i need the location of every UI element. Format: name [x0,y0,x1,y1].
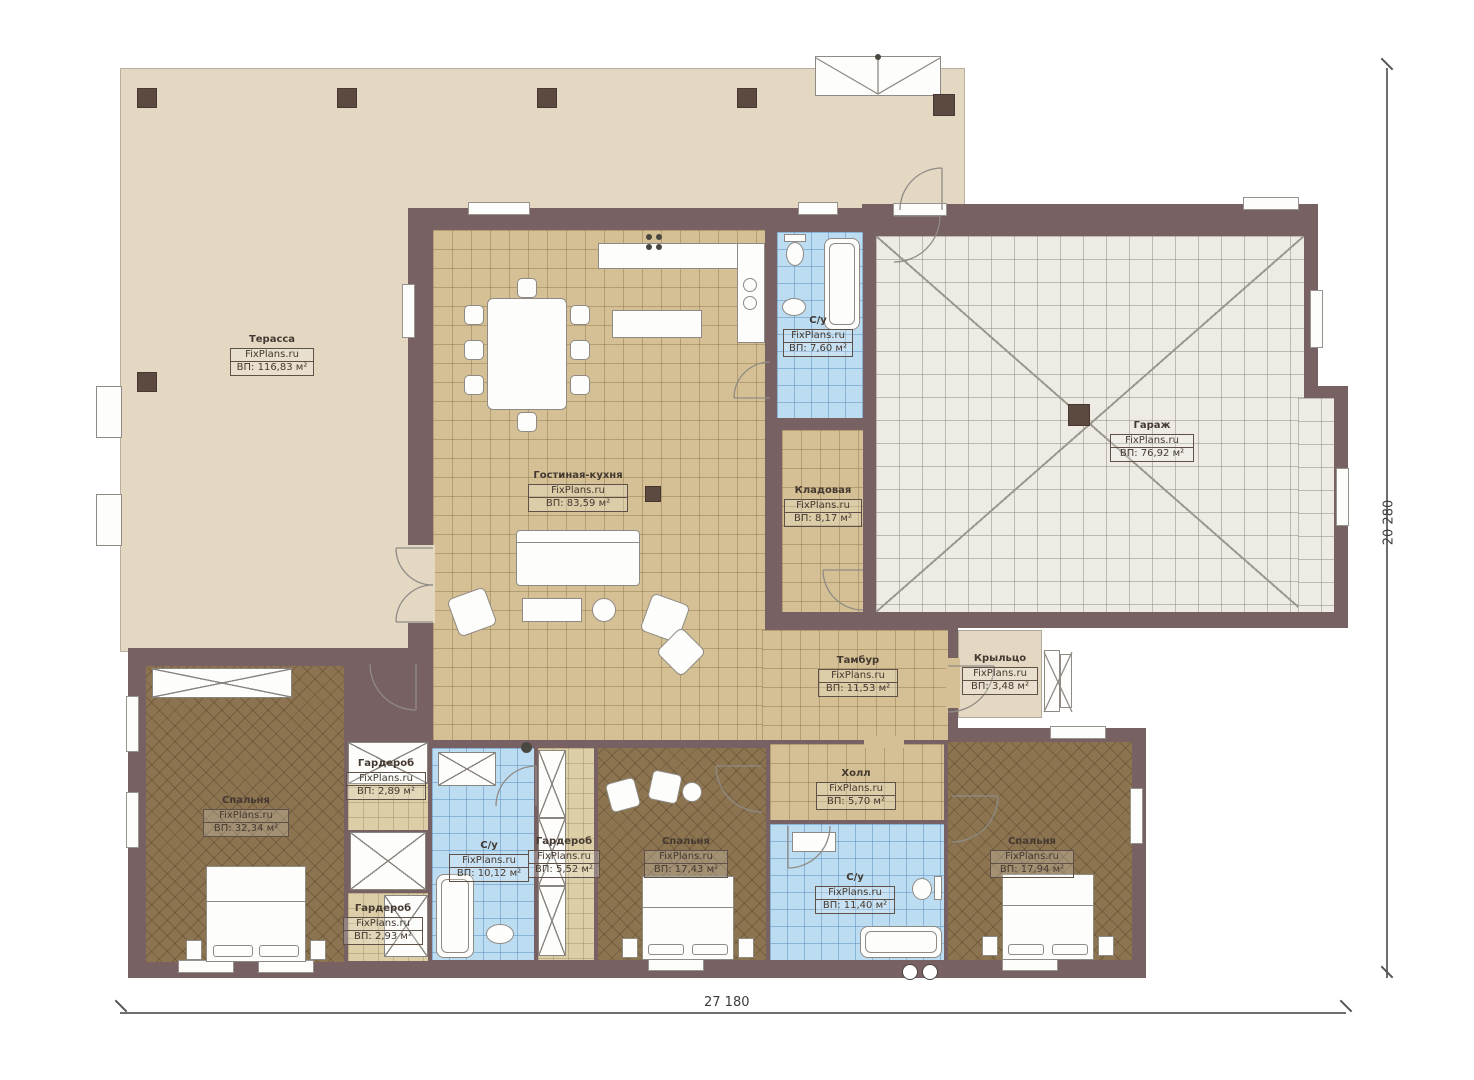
stove-burner [656,244,662,250]
canopy [815,56,941,96]
room-name: С/у [449,840,529,853]
dimension-width: 27 180 [700,995,754,1010]
room-area: ВП: 32,34 м² [204,823,288,836]
room-label-garage: Гараж FixPlans.ru ВП: 76,92 м² [1110,420,1194,462]
pillow [692,944,728,955]
room-label-wardrobe-mid: Гардероб FixPlans.ru ВП: 5,52 м² [528,836,600,878]
round-table [682,782,702,802]
room-area: ВП: 11,40 м² [816,900,894,913]
washbasin [782,298,806,316]
watermark: FixPlans.ru [231,349,313,363]
room-area: ВП: 8,17 м² [785,513,861,526]
room-name: Спальня [644,836,728,849]
bathtub-inner [865,931,937,953]
room-area: ВП: 76,92 м² [1111,448,1193,461]
room-label-bath-left: С/у FixPlans.ru ВП: 10,12 м² [449,840,529,882]
window [126,696,139,752]
terrace-post [337,88,357,108]
stove-burner [646,244,652,250]
window [1050,726,1106,739]
room-area: ВП: 3,48 м² [963,681,1037,694]
stove-burner [656,234,662,240]
room-info-box: FixPlans.ru ВП: 17,94 м² [990,850,1074,878]
dimension-tick [1340,1000,1353,1013]
room-name: Тамбур [818,655,898,668]
bathtub-inner [829,243,855,325]
watermark: FixPlans.ru [817,783,895,797]
window [1336,468,1349,526]
room-label-hall: Холл FixPlans.ru ВП: 5,70 м² [816,768,896,810]
armchair [647,769,683,805]
room-area: ВП: 17,43 м² [645,864,727,877]
hall-opening [864,736,904,748]
chair [464,305,484,325]
toilet-tank [934,876,942,900]
room-label-tambour: Тамбур FixPlans.ru ВП: 11,53 м² [818,655,898,697]
watermark: FixPlans.ru [344,918,422,932]
window [798,202,838,215]
entrance-opening [946,658,960,708]
watermark: FixPlans.ru [1111,435,1193,449]
nightstand [186,940,202,960]
washbasin [486,924,514,944]
porch-step [1044,650,1060,712]
watermark: FixPlans.ru [529,485,627,499]
nightstand [622,938,638,958]
room-name: Гардероб [343,903,423,916]
dimension-line-horizontal [120,1012,1346,1014]
toilet [786,242,804,266]
nightstand [738,938,754,958]
room-area: ВП: 116,83 м² [231,362,313,375]
nightstand [982,936,998,956]
column [645,486,661,502]
watermark: FixPlans.ru [529,851,599,865]
garage-door-opening [893,203,947,216]
bed [206,866,306,962]
room-info-box: FixPlans.ru ВП: 2,89 м² [346,772,426,800]
floor-plan: Терасса FixPlans.ru ВП: 116,83 м² Гостин… [0,0,1474,1080]
room-area: ВП: 10,12 м² [450,868,528,881]
room-info-box: FixPlans.ru ВП: 11,53 м² [818,669,898,697]
room-name: Терасса [230,334,314,347]
room-area: ВП: 2,93 м² [344,931,422,944]
chair [570,375,590,395]
side-table [592,598,616,622]
closet-xbox [438,752,496,786]
chair [570,340,590,360]
kitchen-sink [743,278,757,292]
room-name: Кладовая [784,485,862,498]
column-dot [521,742,532,753]
room-info-box: FixPlans.ru ВП: 76,92 м² [1110,434,1194,462]
bed [1002,874,1094,960]
garage-column [1068,404,1090,426]
room-area: ВП: 5,52 м² [529,864,599,877]
drain-circle [922,964,938,980]
watermark: FixPlans.ru [645,851,727,865]
dimension-height: 20 280 [1381,496,1396,550]
room-name: Гараж [1110,420,1194,433]
room-name: Гостиная-кухня [528,470,628,483]
room-area: ВП: 11,53 м² [819,683,897,696]
room-info-box: FixPlans.ru ВП: 116,83 м² [230,348,314,376]
pillow [648,944,684,955]
pillow [1052,944,1088,955]
room-info-box: FixPlans.ru ВП: 3,48 м² [962,667,1038,695]
closet-xbox [152,668,292,698]
watermark: FixPlans.ru [963,668,1037,682]
room-name: С/у [783,315,853,328]
room-info-box: FixPlans.ru ВП: 7,60 м² [783,329,853,357]
room-info-box: FixPlans.ru ВП: 17,43 м² [644,850,728,878]
terrace-post [737,88,757,108]
room-info-box: FixPlans.ru ВП: 5,52 м² [528,850,600,878]
room-name: С/у [815,872,895,885]
nightstand [310,940,326,960]
watermark: FixPlans.ru [785,500,861,514]
bathtub [436,874,474,958]
sofa-back [517,531,639,543]
garage-floor [876,236,1304,612]
window [402,284,415,338]
bed [642,876,734,960]
nightstand [1098,936,1114,956]
bathtub [860,926,942,958]
watermark: FixPlans.ru [204,810,288,824]
window [1310,290,1323,348]
room-name: Спальня [990,836,1074,849]
chair [570,305,590,325]
room-info-box: FixPlans.ru ВП: 10,12 м² [449,854,529,882]
blanket-line [207,901,305,902]
chair [517,412,537,432]
room-label-bedroom-mid: Спальня FixPlans.ru ВП: 17,43 м² [644,836,728,878]
terrace-post [537,88,557,108]
room-area: ВП: 5,70 м² [817,796,895,809]
room-name: Крыльцо [962,653,1038,666]
room-info-box: FixPlans.ru ВП: 2,93 м² [343,917,423,945]
room-name: Спальня [203,795,289,808]
watermark: FixPlans.ru [347,773,425,787]
room-area: ВП: 17,94 м² [991,864,1073,877]
window [1243,197,1299,210]
room-name: Гардероб [528,836,600,849]
watermark: FixPlans.ru [816,887,894,901]
room-label-bath-top: С/у FixPlans.ru ВП: 7,60 м² [783,315,853,357]
room-info-box: FixPlans.ru ВП: 32,34 м² [203,809,289,837]
room-info-box: FixPlans.ru ВП: 8,17 м² [784,499,862,527]
terrace-post [933,94,955,116]
chair [464,340,484,360]
room-area: ВП: 2,89 м² [347,786,425,799]
watermark: FixPlans.ru [784,330,852,344]
porch-step [1060,654,1072,708]
room-info-box: FixPlans.ru ВП: 5,70 м² [816,782,896,810]
room-label-porch: Крыльцо FixPlans.ru ВП: 3,48 м² [962,653,1038,695]
kitchen-sink [743,296,757,310]
terrace-step [96,386,122,438]
blanket-line [643,907,733,908]
toilet [912,878,932,900]
terrace-post [137,372,157,392]
watermark: FixPlans.ru [819,670,897,684]
stove-burner [646,234,652,240]
pillow [213,945,253,957]
watermark: FixPlans.ru [991,851,1073,865]
kitchen-island [612,310,702,338]
washer [792,832,836,852]
room-name: Холл [816,768,896,781]
window [1130,788,1143,844]
closet-xbox [538,750,566,818]
room-label-living: Гостиная-кухня FixPlans.ru ВП: 83,59 м² [528,470,628,512]
coffee-table [522,598,582,622]
dimension-tick [115,1000,128,1013]
garage-floor-ext [1298,398,1334,612]
kitchen-counter-side [737,243,765,343]
room-info-box: FixPlans.ru ВП: 11,40 м² [815,886,895,914]
window [126,792,139,848]
chair [517,278,537,298]
dining-table [487,298,567,410]
terrace-post [137,88,157,108]
room-area: ВП: 7,60 м² [784,343,852,356]
room-label-bath-mid: С/у FixPlans.ru ВП: 11,40 м² [815,872,895,914]
room-label-bedroom-left: Спальня FixPlans.ru ВП: 32,34 м² [203,795,289,837]
closet-xbox [350,832,426,890]
room-area: ВП: 83,59 м² [529,498,627,511]
blanket-line [1003,905,1093,906]
room-label-wardrobe-top: Гардероб FixPlans.ru ВП: 2,89 м² [346,758,426,800]
room-name: Гардероб [346,758,426,771]
room-label-storage: Кладовая FixPlans.ru ВП: 8,17 м² [784,485,862,527]
room-label-terrace: Терасса FixPlans.ru ВП: 116,83 м² [230,334,314,376]
watermark: FixPlans.ru [450,855,528,869]
room-label-wardrobe-bottom: Гардероб FixPlans.ru ВП: 2,93 м² [343,903,423,945]
room-info-box: FixPlans.ru ВП: 83,59 м² [528,484,628,512]
chair [464,375,484,395]
pillow [259,945,299,957]
room-label-bedroom-right: Спальня FixPlans.ru ВП: 17,94 м² [990,836,1074,878]
closet-xbox [538,886,566,956]
toilet-tank [784,234,806,242]
window [468,202,530,215]
drain-circle [902,964,918,980]
bathtub-inner [441,879,469,953]
pillow [1008,944,1044,955]
terrace-floor-left [120,210,412,652]
sofa [516,530,640,586]
terrace-step [96,494,122,546]
terrace-door-opening [406,545,435,623]
